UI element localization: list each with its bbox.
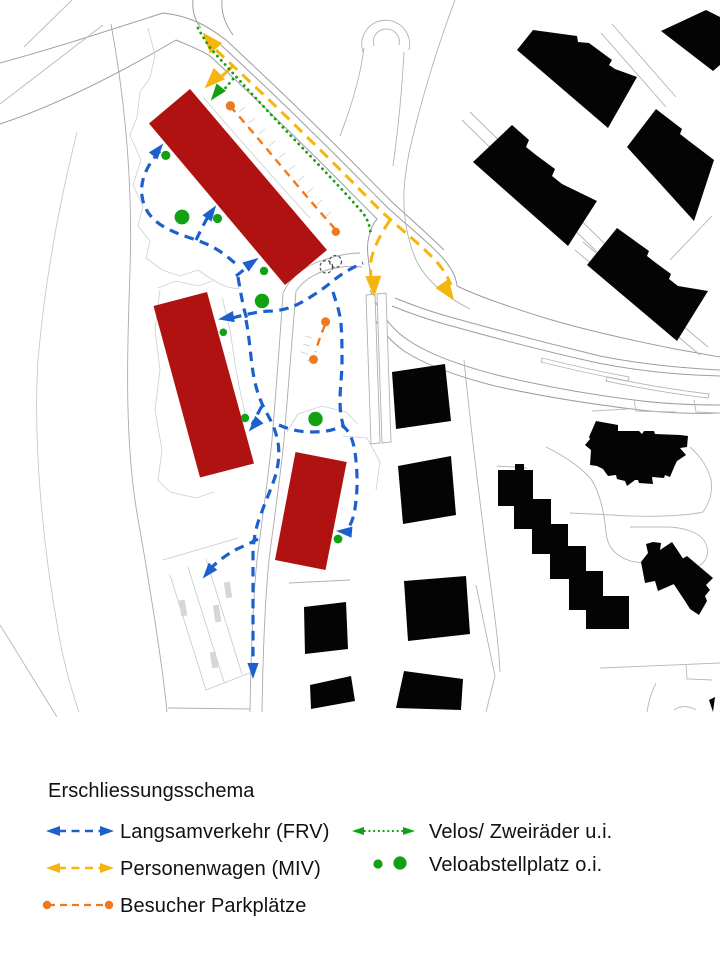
- svg-text:Velos/ Zweiräder u.i.: Velos/ Zweiräder u.i.: [429, 821, 612, 843]
- svg-text:Erschliessungsschema: Erschliessungsschema: [48, 780, 255, 802]
- svg-text:Langsamverkehr (FRV): Langsamverkehr (FRV): [120, 821, 329, 843]
- svg-text:Besucher Parkplätze: Besucher Parkplätze: [120, 895, 306, 917]
- svg-text:Veloabstellplatz o.i.: Veloabstellplatz o.i.: [429, 854, 602, 876]
- svg-text:Personenwagen (MIV): Personenwagen (MIV): [120, 858, 321, 880]
